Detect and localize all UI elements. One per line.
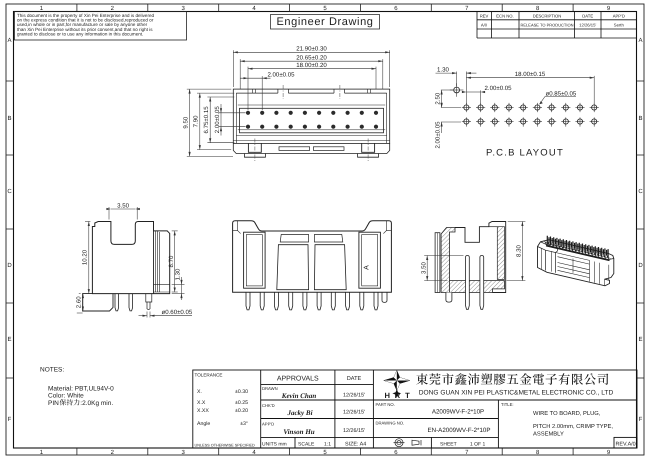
- svg-text:2.50: 2.50: [435, 92, 442, 104]
- svg-text:±0.30: ±0.30: [235, 389, 248, 395]
- svg-text:Color: White: Color: White: [48, 393, 84, 400]
- svg-text:12/26/15': 12/26/15': [343, 428, 365, 434]
- svg-text:DATE: DATE: [347, 376, 362, 382]
- svg-text:A: A: [7, 37, 11, 44]
- svg-text:20.65±0.20: 20.65±0.20: [296, 54, 327, 61]
- svg-text:A2009WV-F-2*10P: A2009WV-F-2*10P: [432, 409, 484, 416]
- svg-text:Material: PBT,UL94V-0: Material: PBT,UL94V-0: [48, 386, 114, 393]
- svg-text:DONG GUAN XIN PEI PLASTIC&META: DONG GUAN XIN PEI PLASTIC&METAL ELECTRON…: [419, 390, 614, 397]
- svg-text:A/0: A/0: [481, 23, 488, 28]
- svg-text:12/26/15': 12/26/15': [579, 23, 596, 28]
- svg-text:ECN NO.: ECN NO.: [496, 13, 513, 18]
- svg-text:DATE: DATE: [582, 13, 593, 18]
- svg-text:D: D: [638, 262, 643, 269]
- svg-text:3.50: 3.50: [420, 261, 427, 273]
- svg-text:12/26/15': 12/26/15': [343, 410, 365, 416]
- svg-text:DRAWING NO.: DRAWING NO.: [376, 421, 405, 426]
- svg-text:Jacky Bi: Jacky Bi: [286, 409, 312, 417]
- svg-text:2.00±0.05: 2.00±0.05: [267, 71, 295, 78]
- svg-text:1 OF 1: 1 OF 1: [470, 442, 486, 448]
- svg-text:PITCH 2.00mm, CRIMP TYPE,: PITCH 2.00mm, CRIMP TYPE,: [533, 423, 613, 430]
- svg-text:1:1: 1:1: [324, 442, 331, 448]
- svg-text:B: B: [638, 115, 642, 122]
- svg-text:±0.20: ±0.20: [235, 408, 248, 414]
- svg-text:ø0.85±0.05: ø0.85±0.05: [546, 90, 577, 97]
- svg-text:PART NO.: PART NO.: [376, 402, 395, 407]
- svg-text:A: A: [364, 265, 371, 270]
- svg-text:Kevin Chan: Kevin Chan: [281, 392, 317, 400]
- svg-text:C: C: [638, 188, 643, 195]
- svg-text:Angle: Angle: [197, 421, 210, 427]
- svg-text:18.00±0.15: 18.00±0.15: [515, 71, 546, 78]
- svg-text:8.70: 8.70: [168, 255, 175, 267]
- svg-text:DESCRIPTION: DESCRIPTION: [533, 13, 562, 18]
- svg-text:WIRE TO BOARD, PLUG,: WIRE TO BOARD, PLUG,: [533, 410, 601, 417]
- svg-text:F: F: [639, 416, 643, 423]
- svg-text:2.60: 2.60: [76, 296, 83, 308]
- svg-text:SIZE: A4: SIZE: A4: [345, 442, 366, 448]
- svg-text:Serth: Serth: [614, 23, 625, 28]
- svg-text:C: C: [7, 188, 12, 195]
- svg-text:NOTES:: NOTES:: [40, 367, 64, 374]
- svg-text:P.C.B LAYOUT: P.C.B LAYOUT: [486, 148, 564, 159]
- svg-text:1.30: 1.30: [175, 268, 182, 280]
- svg-text:F: F: [8, 416, 12, 423]
- svg-text:TOLERANCE: TOLERANCE: [195, 373, 223, 378]
- svg-text:X.XX: X.XX: [197, 408, 209, 414]
- svg-text:21.90±0.30: 21.90±0.30: [296, 45, 327, 52]
- svg-text:9.50: 9.50: [183, 116, 190, 128]
- svg-text:10.20: 10.20: [82, 249, 89, 265]
- svg-text:SHEET: SHEET: [440, 442, 457, 448]
- svg-text:12/26/15': 12/26/15': [343, 393, 365, 399]
- svg-text:EN-A2009WV-F-2*10P: EN-A2009WV-F-2*10P: [428, 427, 491, 434]
- svg-text:X.X: X.X: [197, 400, 206, 406]
- svg-text:UNITS mm: UNITS mm: [262, 442, 287, 448]
- svg-text:2.00±0.05: 2.00±0.05: [485, 85, 513, 92]
- svg-text:E: E: [7, 336, 11, 343]
- svg-text:T: T: [405, 391, 410, 400]
- svg-text:DRAWN: DRAWN: [262, 386, 278, 391]
- svg-text:PIN: PIN: [48, 400, 59, 407]
- svg-text:REV: REV: [480, 13, 489, 18]
- svg-text:Engineer Drawing: Engineer Drawing: [276, 16, 373, 28]
- svg-text:TITLE:: TITLE:: [501, 402, 514, 407]
- svg-text:±3°: ±3°: [240, 421, 248, 427]
- svg-text:Vinson Hu: Vinson Hu: [283, 428, 314, 436]
- svg-text:APPROVALS: APPROVALS: [277, 376, 319, 383]
- svg-text:APP'D: APP'D: [262, 422, 274, 427]
- svg-text:granted to disclose or to: granted to disclose or to use any inform…: [17, 32, 143, 37]
- svg-text:2.00±0.05: 2.00±0.05: [214, 106, 221, 134]
- svg-text:E: E: [638, 336, 642, 343]
- svg-text:±0.25: ±0.25: [235, 400, 248, 406]
- svg-text:CHK'D: CHK'D: [262, 403, 275, 408]
- svg-text:REV.A/0: REV.A/0: [616, 442, 636, 448]
- svg-text:8.30: 8.30: [516, 244, 523, 256]
- svg-text:ø0.60±0.05: ø0.60±0.05: [162, 309, 193, 316]
- svg-text::2.0Kg min.: :2.0Kg min.: [80, 400, 113, 407]
- svg-text:3.50: 3.50: [117, 202, 129, 209]
- svg-text:APP'D: APP'D: [613, 13, 625, 18]
- svg-text:RELEASE TO PRODUCTION: RELEASE TO PRODUCTION: [521, 23, 574, 28]
- svg-text:ASSEMBLY: ASSEMBLY: [533, 431, 564, 438]
- svg-text:2.00±0.05: 2.00±0.05: [435, 121, 442, 149]
- svg-text:D: D: [7, 262, 12, 269]
- svg-text:X.: X.: [197, 389, 202, 395]
- svg-text:7.90: 7.90: [193, 115, 200, 127]
- svg-text:18.00±0.20: 18.00±0.20: [296, 62, 327, 69]
- svg-text:UNLESS OTHERWISE SPECIFIED: UNLESS OTHERWISE SPECIFIED: [195, 444, 256, 448]
- svg-text:A: A: [638, 37, 642, 44]
- svg-text:6.75±0.15: 6.75±0.15: [203, 106, 210, 134]
- svg-text:SCALE: SCALE: [298, 442, 315, 448]
- svg-text:H: H: [384, 391, 389, 400]
- svg-text:B: B: [7, 115, 11, 122]
- svg-text:1.30: 1.30: [437, 66, 449, 73]
